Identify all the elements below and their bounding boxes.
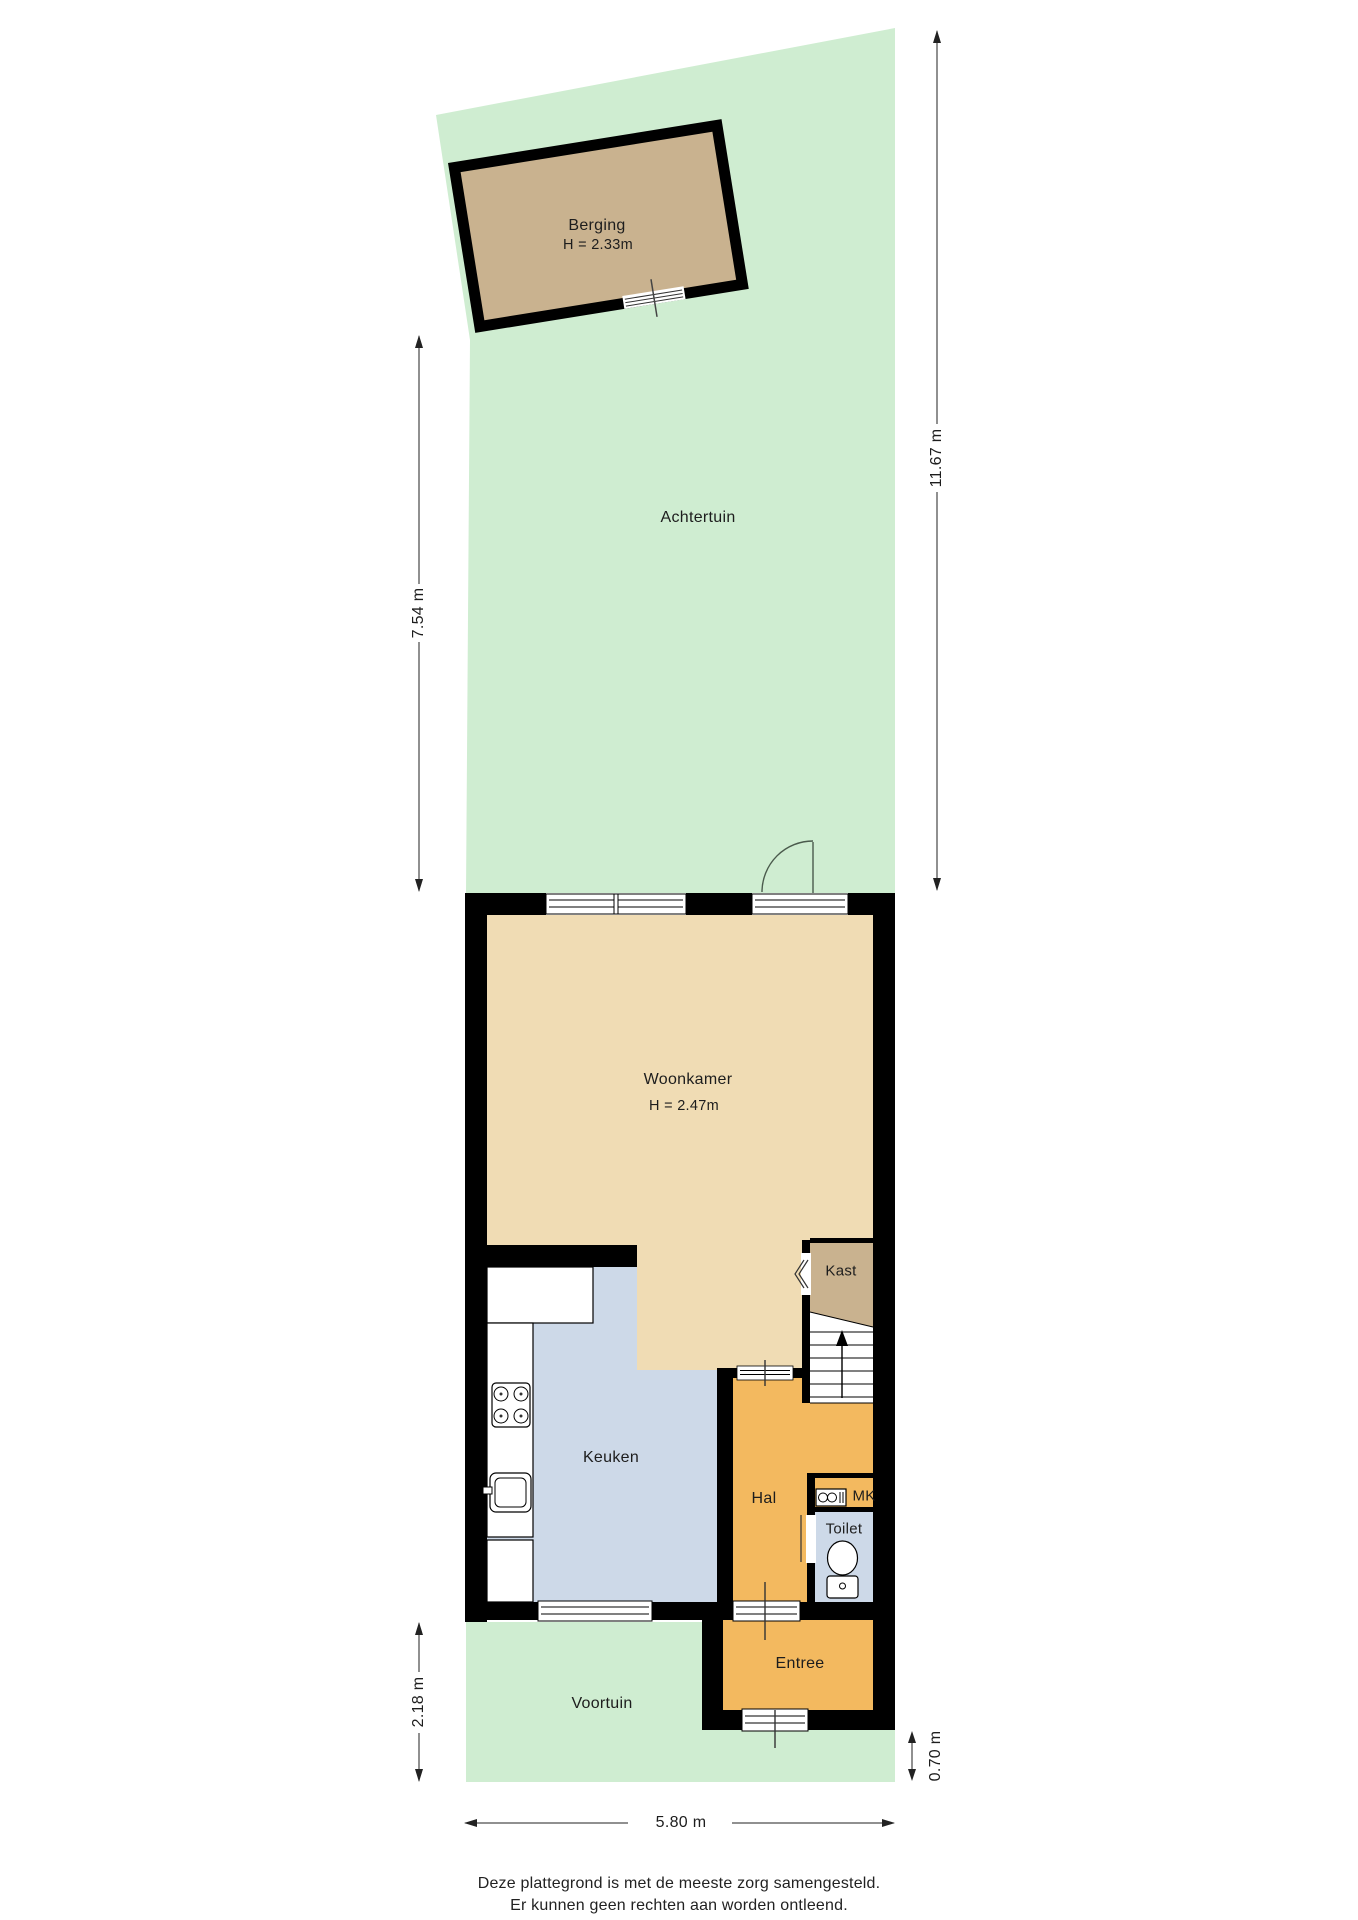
sink-icon [483,1473,531,1512]
rear-window [546,894,686,914]
dim-front-strip-depth [908,1731,916,1781]
footer-disclaimer-line1: Deze plattegrond is met de meeste zorg s… [478,1875,881,1893]
woonkamer-height-label: H = 2.47m [649,1098,719,1114]
berging-label: Berging [568,217,625,235]
entree-label: Entree [776,1655,825,1673]
dim-total-depth-right-label: 11.67 m [928,429,946,488]
berging-height-label: H = 2.33m [563,237,633,253]
dim-front-strip-depth-label: 0.70 m [927,1731,945,1782]
keuken-label: Keuken [583,1449,639,1467]
kast-label: Kast [825,1263,856,1280]
stove-icon [492,1383,530,1427]
dim-garden-depth-left-label: 7.54 m [410,588,428,639]
toilet-icon [827,1541,858,1598]
footer-disclaimer-line2: Er kunnen geen rechten aan worden ontlee… [510,1897,848,1915]
front-window [538,1601,652,1621]
achtertuin-label: Achtertuin [660,509,735,527]
voortuin-label: Voortuin [571,1695,632,1713]
dim-front-garden-depth-label: 2.18 m [410,1677,428,1728]
woonkamer-label: Woonkamer [644,1071,733,1089]
toilet-label: Toilet [826,1521,863,1538]
mk-label: MK [852,1488,875,1505]
floorplan-drawing [0,0,1358,1920]
meterbox-icon [816,1489,846,1506]
hal-label: Hal [752,1490,777,1508]
dim-plot-width-label: 5.80 m [656,1814,707,1832]
floorplan-page: Berging H = 2.33m Achtertuin Woonkamer H… [0,0,1358,1920]
